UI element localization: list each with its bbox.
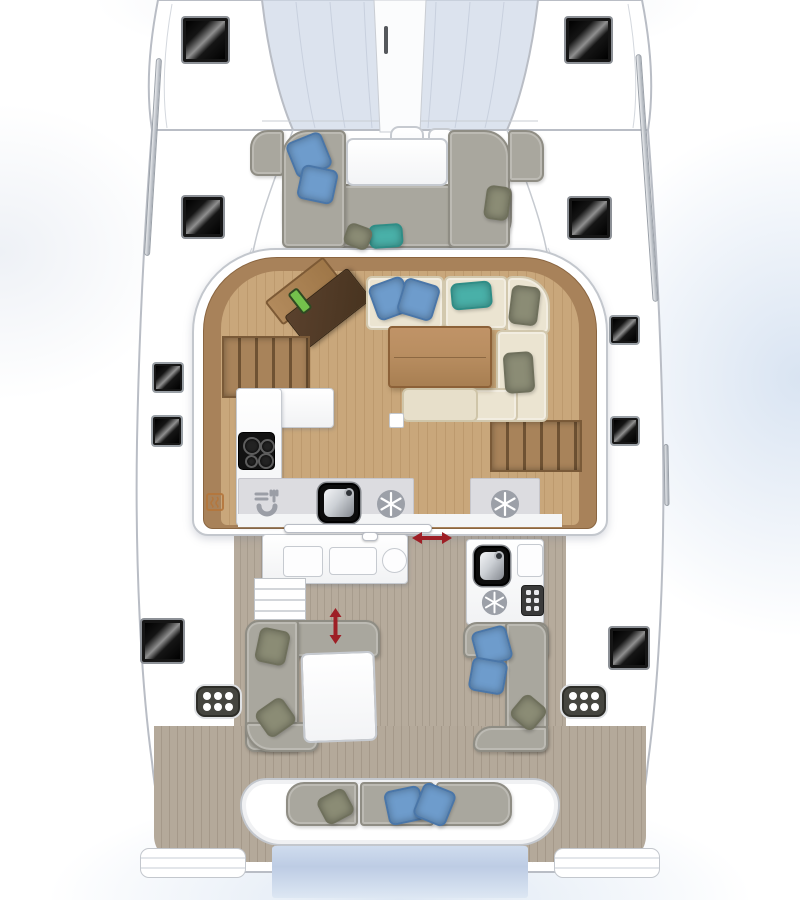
cockpit-table: [300, 651, 377, 744]
saloon-ottoman: [402, 388, 478, 422]
bowsprit: [374, 0, 426, 132]
starboard-hull-stairs: [490, 420, 582, 472]
wet-bar-hatch: [517, 544, 543, 577]
deck-hatch: [183, 197, 223, 237]
pillow-teal: [368, 223, 404, 249]
heater-icon: [206, 493, 224, 511]
counter-round-hatch: [382, 548, 407, 573]
bow-lounge-wing-port: [250, 130, 284, 176]
port-transom-step: [140, 848, 246, 878]
hull-window: [154, 364, 182, 391]
sliding-door-handle: [362, 532, 378, 541]
pillow-olive: [483, 184, 512, 221]
starboard-transom-step: [554, 848, 660, 878]
catamaran-deck-plan: [0, 0, 800, 900]
fridge-snowflake-icon: [490, 489, 520, 519]
cooktop: [238, 432, 275, 470]
dishes-icon: [252, 488, 282, 518]
starboard-toe-rail: [663, 444, 669, 506]
burner: [260, 439, 275, 454]
slide-arrow-icon: [410, 531, 454, 545]
hull-window: [611, 317, 638, 343]
hull-window: [153, 417, 181, 445]
pillow-olive: [508, 284, 542, 326]
fridge-snowflake-icon: [481, 589, 508, 616]
vent-grille: [562, 686, 606, 717]
bow-table: [346, 138, 448, 186]
deck-hatch: [566, 18, 611, 62]
counter-hatch: [283, 546, 323, 577]
bow-lounge-wing-stb: [508, 130, 544, 182]
deck-hatch: [142, 620, 183, 662]
table-slide-arrow-icon: [328, 607, 343, 645]
burner: [245, 455, 258, 468]
bowsprit-fitting: [384, 26, 388, 54]
galley-sink: [318, 483, 360, 523]
deck-hatch: [610, 628, 648, 668]
deck-hatch: [183, 18, 228, 62]
stb-lounge-foot: [473, 726, 548, 752]
wet-bar-sink: [474, 546, 510, 586]
pillow-blue: [467, 656, 508, 696]
control-panel: [521, 585, 544, 616]
swim-platform-water: [272, 846, 528, 898]
table-leg-base: [389, 413, 404, 428]
burner: [258, 453, 274, 469]
pillow-teal: [450, 280, 493, 310]
pillow-blue: [296, 164, 339, 206]
fridge-snowflake-icon: [376, 489, 406, 519]
hull-window: [612, 418, 638, 444]
cockpit-side-steps: [254, 578, 306, 620]
deck-hatch: [569, 198, 610, 238]
counter-hatch: [329, 547, 377, 575]
vent-grille: [196, 686, 240, 717]
pillow-olive: [503, 351, 536, 394]
burner: [243, 437, 261, 455]
saloon-table: [388, 326, 492, 388]
